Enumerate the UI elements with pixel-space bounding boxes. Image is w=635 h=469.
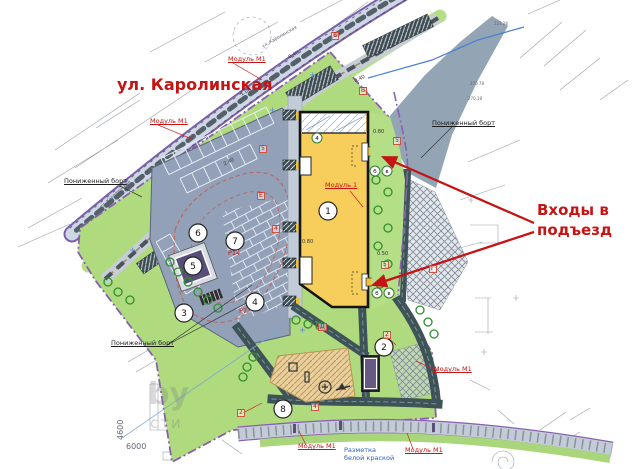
svg-text:7: 7 (232, 237, 238, 247)
svg-text:б: б (375, 291, 379, 297)
svg-text:6: 6 (195, 229, 201, 239)
building-module-2 (362, 356, 379, 391)
svg-text:в: в (385, 169, 388, 175)
position-marker-3: 3 (175, 304, 193, 322)
building-module-1 (300, 112, 376, 307)
position-marker-4: 4 (246, 293, 264, 311)
svg-text:5: 5 (190, 262, 196, 272)
letter-marker-4: 4 (312, 133, 322, 143)
svg-text:б: б (373, 169, 377, 175)
position-marker-8: 8 (274, 400, 292, 418)
bottom-road (238, 421, 612, 459)
position-marker-7: 7 (226, 232, 244, 250)
letter-marker-б: б (370, 166, 380, 176)
position-marker-2: 2 (375, 338, 393, 356)
svg-text:2: 2 (381, 343, 387, 353)
letter-marker-в: в (382, 166, 392, 176)
svg-text:4: 4 (315, 136, 319, 142)
entrance-porch-west (300, 157, 311, 175)
svg-text:1: 1 (325, 207, 331, 217)
svg-text:в: в (387, 291, 390, 297)
svg-text:4: 4 (252, 298, 258, 308)
entrance-porch-west (300, 257, 312, 284)
svg-text:8: 8 (280, 405, 286, 415)
letter-marker-в: в (384, 288, 394, 298)
entrance-niche-east (362, 143, 368, 161)
svg-text:3: 3 (181, 309, 187, 319)
site-plan: 12345678бвбв4 ул. Каролинская Входы в по… (0, 0, 635, 469)
site-plan-drawing: 12345678бвбв4 (0, 0, 635, 469)
position-marker-1: 1 (319, 202, 337, 220)
letter-marker-б: б (372, 288, 382, 298)
position-marker-5: 5 (184, 257, 202, 275)
position-marker-6: 6 (189, 224, 207, 242)
